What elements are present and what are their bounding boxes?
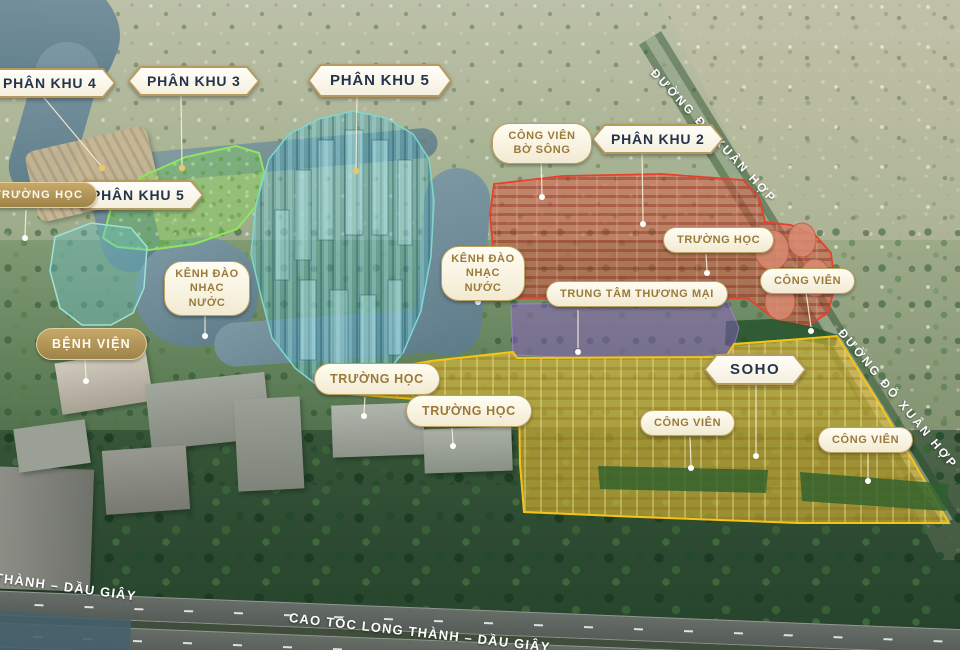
amenity-label-cong-vien-soho-left: CÔNG VIÊN: [640, 410, 735, 436]
zone-label-phan-khu-2: PHÂN KHU 2: [592, 124, 724, 154]
amenity-label-trung-tam-thuong-mai: TRUNG TÂM THƯƠNG MẠI: [546, 281, 728, 307]
amenity-label-cong-vien-phan-khu-2: CÔNG VIÊN: [760, 268, 855, 294]
amenity-label-truong-hoc-far-left: TRƯỜNG HỌC: [0, 182, 97, 208]
amenity-label-benh-vien: BỆNH VIỆN: [36, 328, 147, 360]
amenity-label-cong-vien-bo-song: CÔNG VIÊN BỜ SÔNG: [492, 123, 592, 164]
zone-label-soho: SOHO: [704, 354, 806, 385]
zone-overlay-svg: [0, 0, 960, 650]
zone-purple-overlay: [511, 302, 739, 357]
zone-teal-small-overlay: [50, 223, 147, 325]
zone-label-phan-khu-5-top: PHÂN KHU 5: [308, 64, 452, 97]
park-lawn-left: [598, 466, 768, 493]
amenity-label-kenh-dao-nhac-nuoc-center: KÊNH ĐÀO NHẠC NƯỚC: [441, 246, 525, 301]
masterplan-aerial-map: PHÂN KHU 4 PHÂN KHU 3 PHÂN KHU 5 PHÂN KH…: [0, 0, 960, 650]
amenity-label-kenh-dao-nhac-nuoc-left: KÊNH ĐÀO NHẠC NƯỚC: [164, 261, 250, 316]
amenity-label-cong-vien-soho-right: CÔNG VIÊN: [818, 427, 913, 453]
zone-label-phan-khu-4: PHÂN KHU 4: [0, 68, 116, 98]
amenity-label-truong-hoc-phan-khu-2: TRƯỜNG HỌC: [663, 227, 774, 253]
zone-label-phan-khu-3: PHÂN KHU 3: [128, 66, 260, 96]
amenity-label-truong-hoc-center-2: TRƯỜNG HỌC: [406, 395, 532, 427]
amenity-label-truong-hoc-center-1: TRƯỜNG HỌC: [314, 363, 440, 395]
